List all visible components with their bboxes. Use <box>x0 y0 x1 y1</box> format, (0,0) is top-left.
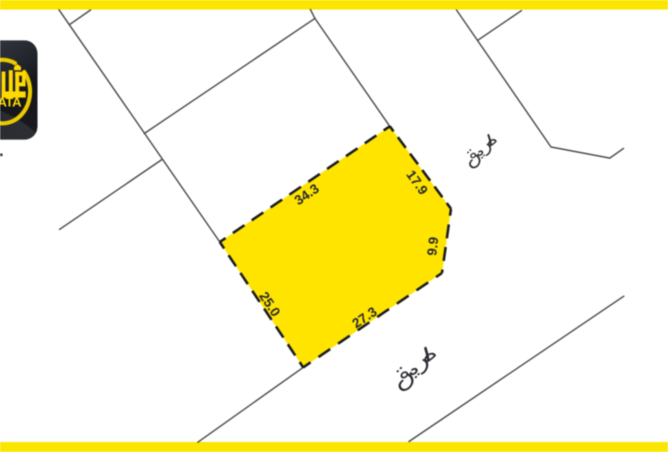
svg-text:ATA: ATA <box>0 94 22 109</box>
svg-text:9.9: 9.9 <box>424 236 441 256</box>
